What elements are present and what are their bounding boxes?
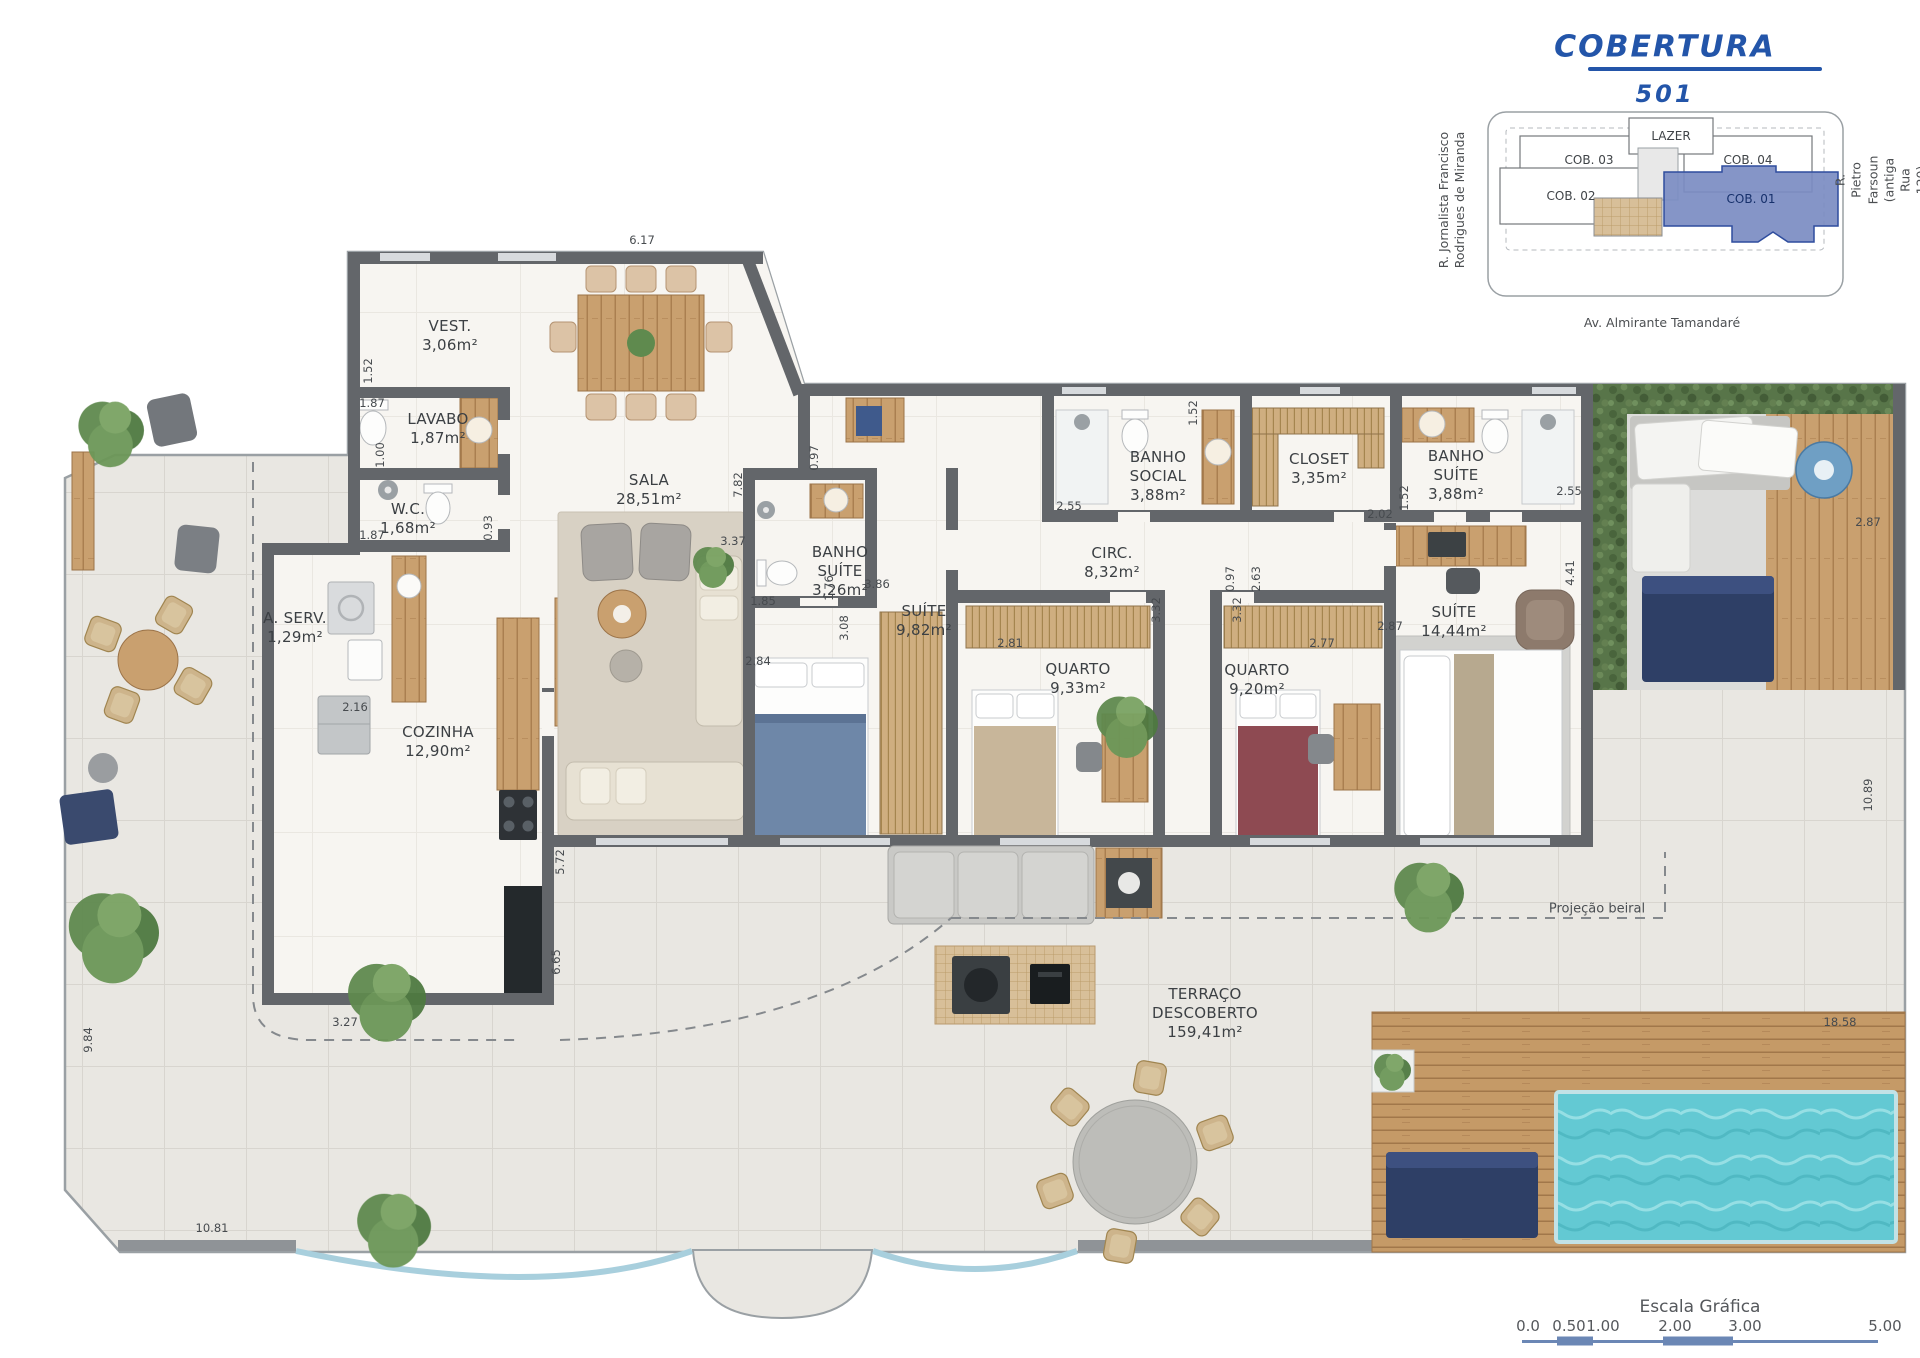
pool-area: [1372, 1012, 1905, 1252]
hedge: [1593, 384, 1905, 414]
pool: [1556, 1092, 1896, 1242]
balcony-bump: [693, 1250, 872, 1318]
lounge-deck: [1593, 384, 1905, 690]
keyplan-graphic: [1488, 112, 1843, 296]
glass-railing: [296, 1251, 692, 1277]
floorplan-graphic: [0, 0, 1920, 1358]
outdoor-dining-table: [1073, 1100, 1197, 1224]
floorplan-canvas: COBERTURA 501 COB. 03 COB. 04 COB. 02 CO…: [0, 0, 1920, 1358]
hedge: [1593, 414, 1627, 690]
glass-railing: [873, 1251, 1077, 1269]
scalebar-graphic: [1522, 1337, 1878, 1346]
